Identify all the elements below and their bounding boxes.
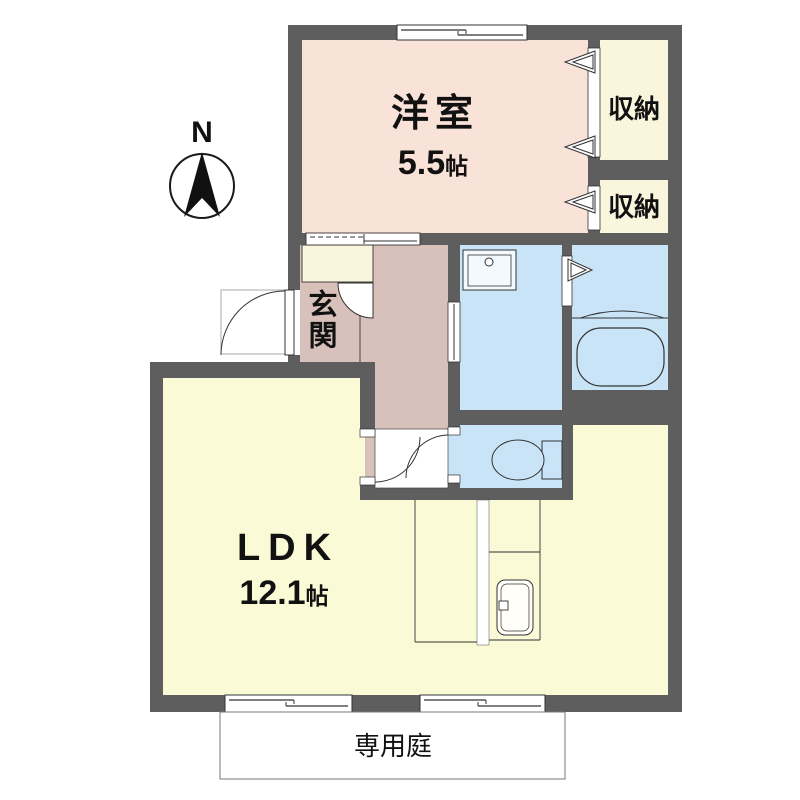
compass [170,152,234,218]
storage-bottom-name: 収納 [608,192,660,222]
compass-north-text: N [191,116,213,149]
floor-plan: N 洋室 5.5帖 収納 収納 玄関 LDK 12.1帖 専用庭 [0,0,800,800]
washbasin [463,250,516,290]
western-room-size-label: 5.5帖 [398,146,468,180]
toilet-bowl [492,440,544,480]
entrance-label: 玄関 [309,291,338,354]
sliding-door [306,233,420,245]
door-leaf [285,290,294,355]
storage-bottom-label: 収納 [608,194,660,220]
ldk-floor-right [568,420,675,706]
sliding-window [397,25,527,40]
ldk-area-value: 12.1 [239,574,305,612]
entrance-name: 玄関 [309,290,338,353]
toilet-group [492,440,562,480]
wall [448,362,460,410]
wall [668,25,682,712]
door-swing-zone [375,429,448,488]
wall [288,245,300,290]
washbasin-cabinet [463,250,516,290]
door-post [360,477,375,485]
sliding-window [420,695,545,712]
toilet-tank [542,441,562,479]
door-post [360,429,375,437]
ldk-name: LDK [237,527,339,569]
western-room-name: 洋室 [391,93,479,135]
compass-north-label: N [191,118,213,148]
wall [562,245,572,256]
wall [562,306,572,390]
wall [150,362,163,712]
sliding-window [225,695,352,712]
hall-doors [360,427,460,488]
ldk-size-label: 12.1帖 [239,576,328,610]
western-room-area-value: 5.5 [398,144,445,182]
storage-top-name: 収納 [608,94,660,124]
storage-top-label: 収納 [608,96,660,122]
sink-faucet-icon [499,601,508,610]
private-garden-name: 専用庭 [354,731,432,761]
wall [360,362,375,437]
private-garden-label: 専用庭 [354,733,432,759]
wall [360,488,573,500]
wall [150,362,375,378]
door-post [448,427,460,435]
counter-divider [477,500,489,645]
shoe-cabinet [302,245,373,282]
door-post [448,475,460,483]
wall [588,160,668,180]
wall [562,425,573,500]
wall [448,245,460,302]
western-room-label: 洋室 [385,95,479,133]
wall [288,25,302,245]
ldk-area-unit: 帖 [306,583,329,609]
ldk-label: LDK [229,529,339,567]
faucet-icon [485,258,493,266]
entrance-door [221,290,294,355]
western-room-area-unit: 帖 [445,153,468,179]
western-room-sliding-door [306,233,420,245]
wall [562,390,682,425]
washroom-sliding-door [448,302,460,362]
